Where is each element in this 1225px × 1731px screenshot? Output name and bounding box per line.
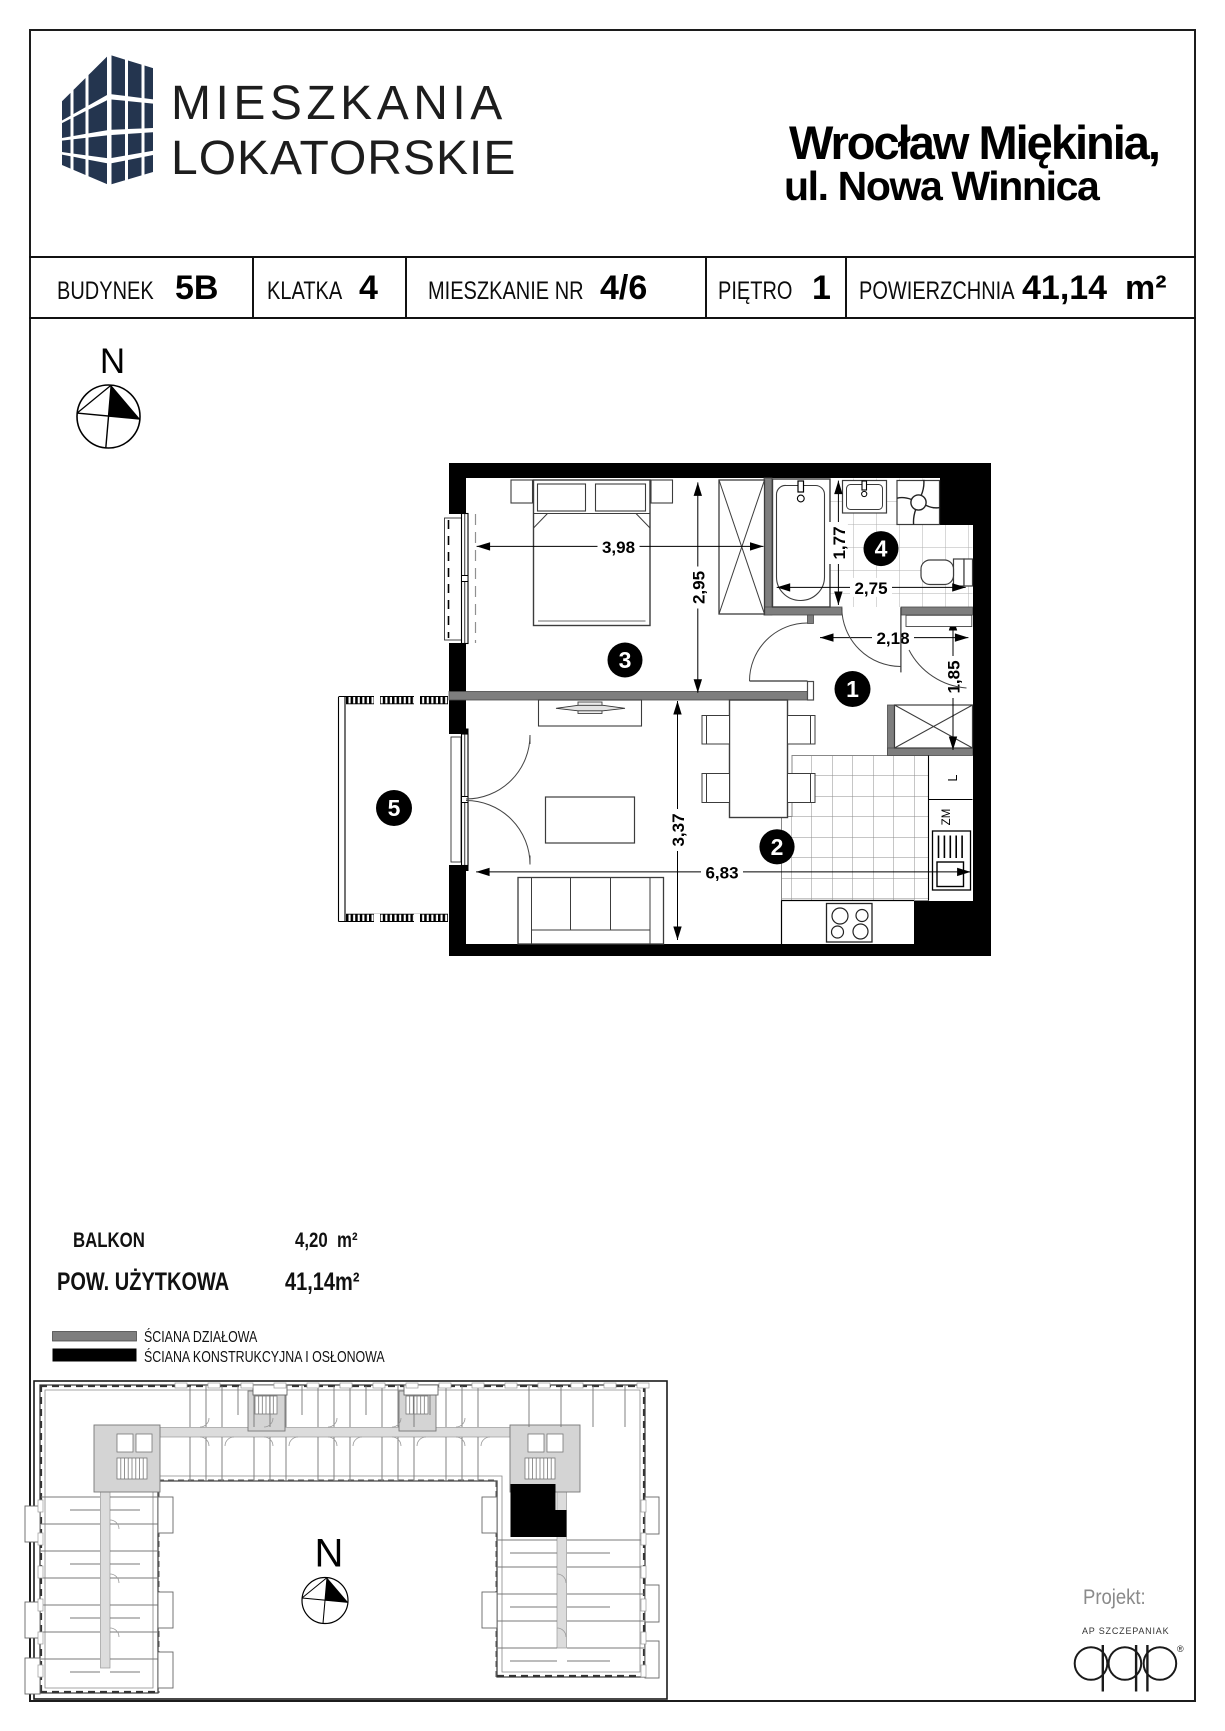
svg-text:®: ® <box>1177 1644 1184 1654</box>
svg-text:2,75: 2,75 <box>854 579 887 598</box>
svg-text:N: N <box>315 1532 344 1576</box>
svg-text:N: N <box>100 342 125 381</box>
svg-text:2,95: 2,95 <box>689 571 708 604</box>
svg-text:2: 2 <box>771 834 784 860</box>
svg-text:ZM: ZM <box>941 809 953 826</box>
svg-text:3,98: 3,98 <box>602 538 635 557</box>
svg-text:1,85: 1,85 <box>945 660 964 693</box>
svg-text:3: 3 <box>619 647 632 673</box>
svg-text:5: 5 <box>388 795 401 821</box>
svg-text:1,77: 1,77 <box>830 526 849 559</box>
svg-text:4: 4 <box>875 536 888 562</box>
svg-text:3,37: 3,37 <box>669 813 688 846</box>
svg-text:L: L <box>946 774 960 781</box>
svg-text:1: 1 <box>846 676 859 702</box>
svg-text:6,83: 6,83 <box>705 863 738 882</box>
svg-text:2,18: 2,18 <box>876 629 909 648</box>
